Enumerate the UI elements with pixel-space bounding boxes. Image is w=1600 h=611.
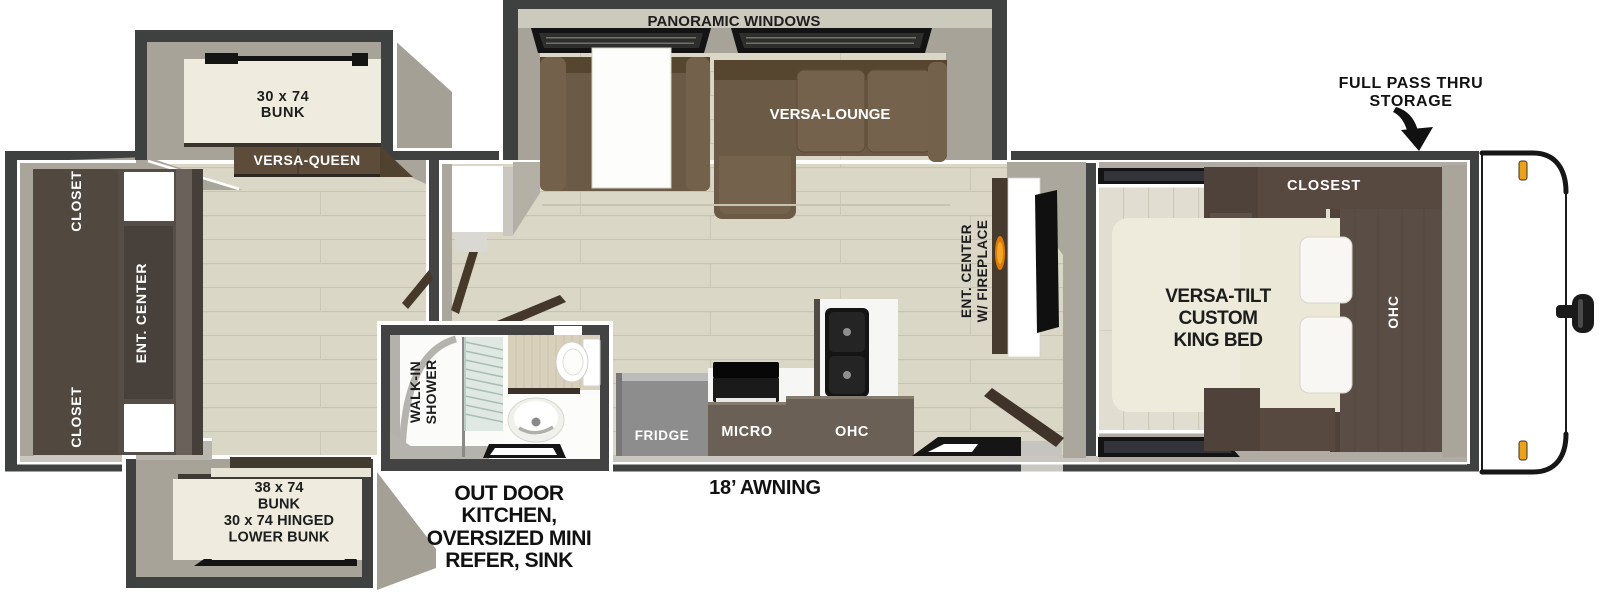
svg-text:VERSA-QUEEN: VERSA-QUEEN (253, 152, 360, 168)
svg-text:18’ AWNING: 18’ AWNING (709, 477, 821, 499)
svg-text:OUT DOOR: OUT DOOR (454, 482, 563, 505)
svg-text:38 x 74: 38 x 74 (254, 480, 303, 496)
svg-text:REFER, SINK: REFER, SINK (445, 549, 573, 572)
svg-text:MICRO: MICRO (721, 424, 772, 440)
svg-text:OVERSIZED MINI: OVERSIZED MINI (427, 527, 592, 550)
svg-text:30 x 74: 30 x 74 (257, 89, 310, 105)
svg-text:LOWER BUNK: LOWER BUNK (229, 530, 330, 546)
svg-text:ENT. CENTER: ENT. CENTER (959, 224, 974, 318)
svg-text:CLOSEST: CLOSEST (1287, 178, 1361, 194)
svg-text:SHOWER: SHOWER (423, 360, 439, 425)
svg-text:WALK-IN: WALK-IN (407, 361, 423, 423)
svg-text:OHC: OHC (835, 424, 869, 440)
svg-text:FRIDGE: FRIDGE (635, 428, 690, 443)
svg-text:CLOSET: CLOSET (68, 170, 84, 232)
svg-text:FULL PASS THRU: FULL PASS THRU (1339, 75, 1484, 92)
svg-text:STORAGE: STORAGE (1369, 93, 1452, 110)
svg-text:W/ FIREPLACE: W/ FIREPLACE (975, 220, 990, 323)
svg-text:BUNK: BUNK (258, 497, 301, 513)
svg-text:CUSTOM: CUSTOM (1179, 308, 1258, 329)
svg-text:VERSA-TILT: VERSA-TILT (1165, 286, 1271, 307)
svg-text:PANORAMIC WINDOWS: PANORAMIC WINDOWS (647, 13, 820, 30)
svg-text:BUNK: BUNK (261, 105, 305, 121)
svg-text:KING BED: KING BED (1174, 330, 1263, 351)
svg-text:KITCHEN,: KITCHEN, (461, 504, 556, 527)
svg-text:30 x 74 HINGED: 30 x 74 HINGED (224, 513, 334, 529)
svg-text:ENT. CENTER: ENT. CENTER (133, 263, 149, 364)
svg-text:VERSA-LOUNGE: VERSA-LOUNGE (770, 106, 891, 123)
svg-text:OHC: OHC (1385, 295, 1401, 329)
svg-text:CLOSET: CLOSET (68, 386, 84, 448)
